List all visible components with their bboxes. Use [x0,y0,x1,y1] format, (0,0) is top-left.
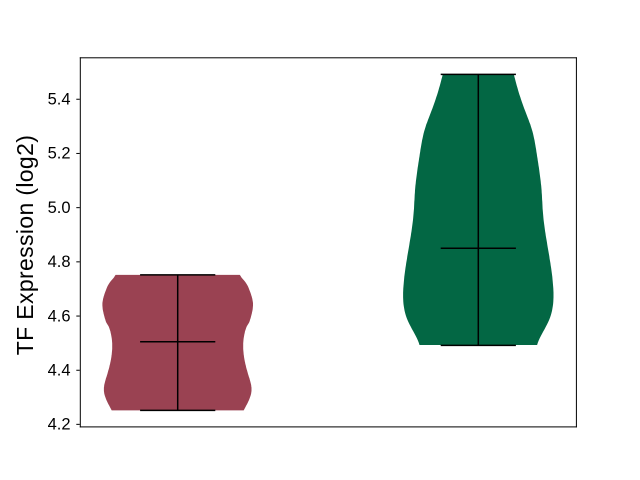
svg-text:5.4: 5.4 [48,91,71,109]
svg-text:4.8: 4.8 [48,253,71,271]
svg-text:5.2: 5.2 [48,145,71,163]
svg-text:4.4: 4.4 [48,362,71,380]
svg-text:4.6: 4.6 [48,307,71,325]
svg-text:4.2: 4.2 [48,416,71,434]
svg-text:TF Expression (log2): TF Expression (log2) [12,135,38,355]
svg-text:5.0: 5.0 [48,199,71,217]
